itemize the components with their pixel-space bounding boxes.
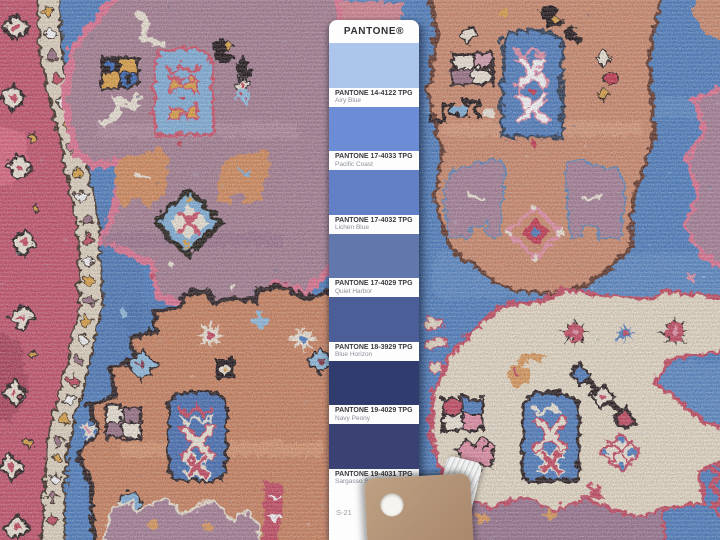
pantone-swatch: PANTONE 14-4122 TPG Airy Blue [329,43,419,107]
pantone-header: PANTONE® [329,20,419,43]
pantone-color-chip [329,234,419,279]
pantone-swatch-label: PANTONE 17-4033 TPG Pacific Coast [329,151,419,170]
pantone-color-chip [329,297,419,342]
pantone-color-chip [329,170,419,215]
rug-photo: PANTONE® PANTONE 14-4122 TPG Airy Blue P… [0,0,720,540]
pantone-swatch: PANTONE 19-4029 TPG Navy Peony [329,361,419,425]
punch-hole-icon [380,493,404,517]
pantone-swatch: PANTONE 18-3929 TPG Blue Horizon [329,297,419,361]
pantone-swatch: PANTONE 17-4032 TPG Lichen Blue [329,170,419,234]
pantone-color-chip [329,43,419,88]
pantone-swatch-label: PANTONE 19-4029 TPG Navy Peony [329,405,419,424]
pantone-color-chip [329,424,419,469]
pantone-swatch: PANTONE 17-4029 TPG Quiet Harbor [329,234,419,298]
pantone-color-chip [329,107,419,152]
pantone-swatch-label: PANTONE 14-4122 TPG Airy Blue [329,88,419,107]
pantone-brand-logo: PANTONE® [344,26,404,37]
pantone-swatch-label: PANTONE 17-4029 TPG Quiet Harbor [329,278,419,297]
pantone-swatch-list: PANTONE 14-4122 TPG Airy Blue PANTONE 17… [329,43,419,488]
pantone-swatch-label: PANTONE 17-4032 TPG Lichen Blue [329,215,419,234]
pantone-color-chip [329,361,419,406]
pantone-swatch-label: PANTONE 18-3929 TPG Blue Horizon [329,342,419,361]
tan-swatch-card [364,473,474,540]
pantone-fan-strip: PANTONE® PANTONE 14-4122 TPG Airy Blue P… [329,20,419,540]
pantone-sheet-code: S-21 [336,508,352,517]
pantone-swatch: PANTONE 17-4033 TPG Pacific Coast [329,107,419,171]
